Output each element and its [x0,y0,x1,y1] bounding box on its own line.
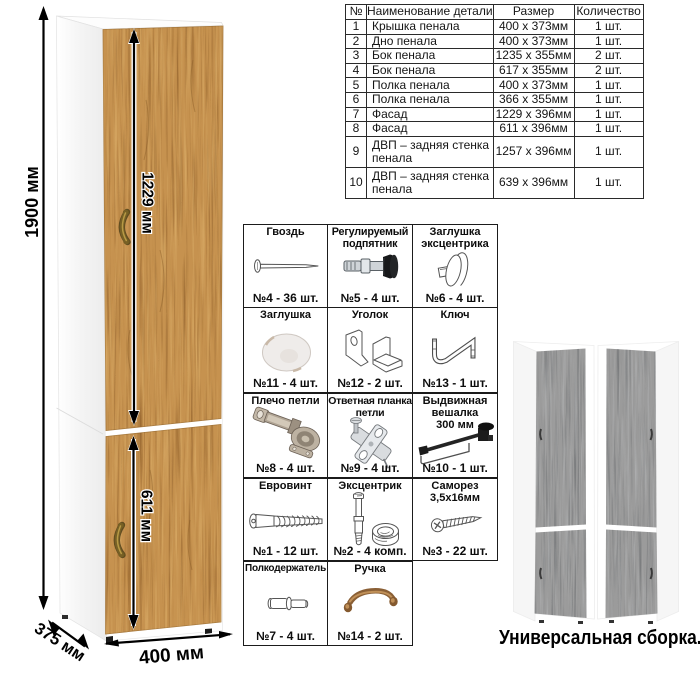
svg-text:400 мм: 400 мм [138,642,205,669]
svg-text:1900 мм: 1900 мм [22,166,42,238]
svg-text:611 мм: 611 мм [138,490,155,542]
svg-text:1229 мм: 1229 мм [139,172,156,234]
